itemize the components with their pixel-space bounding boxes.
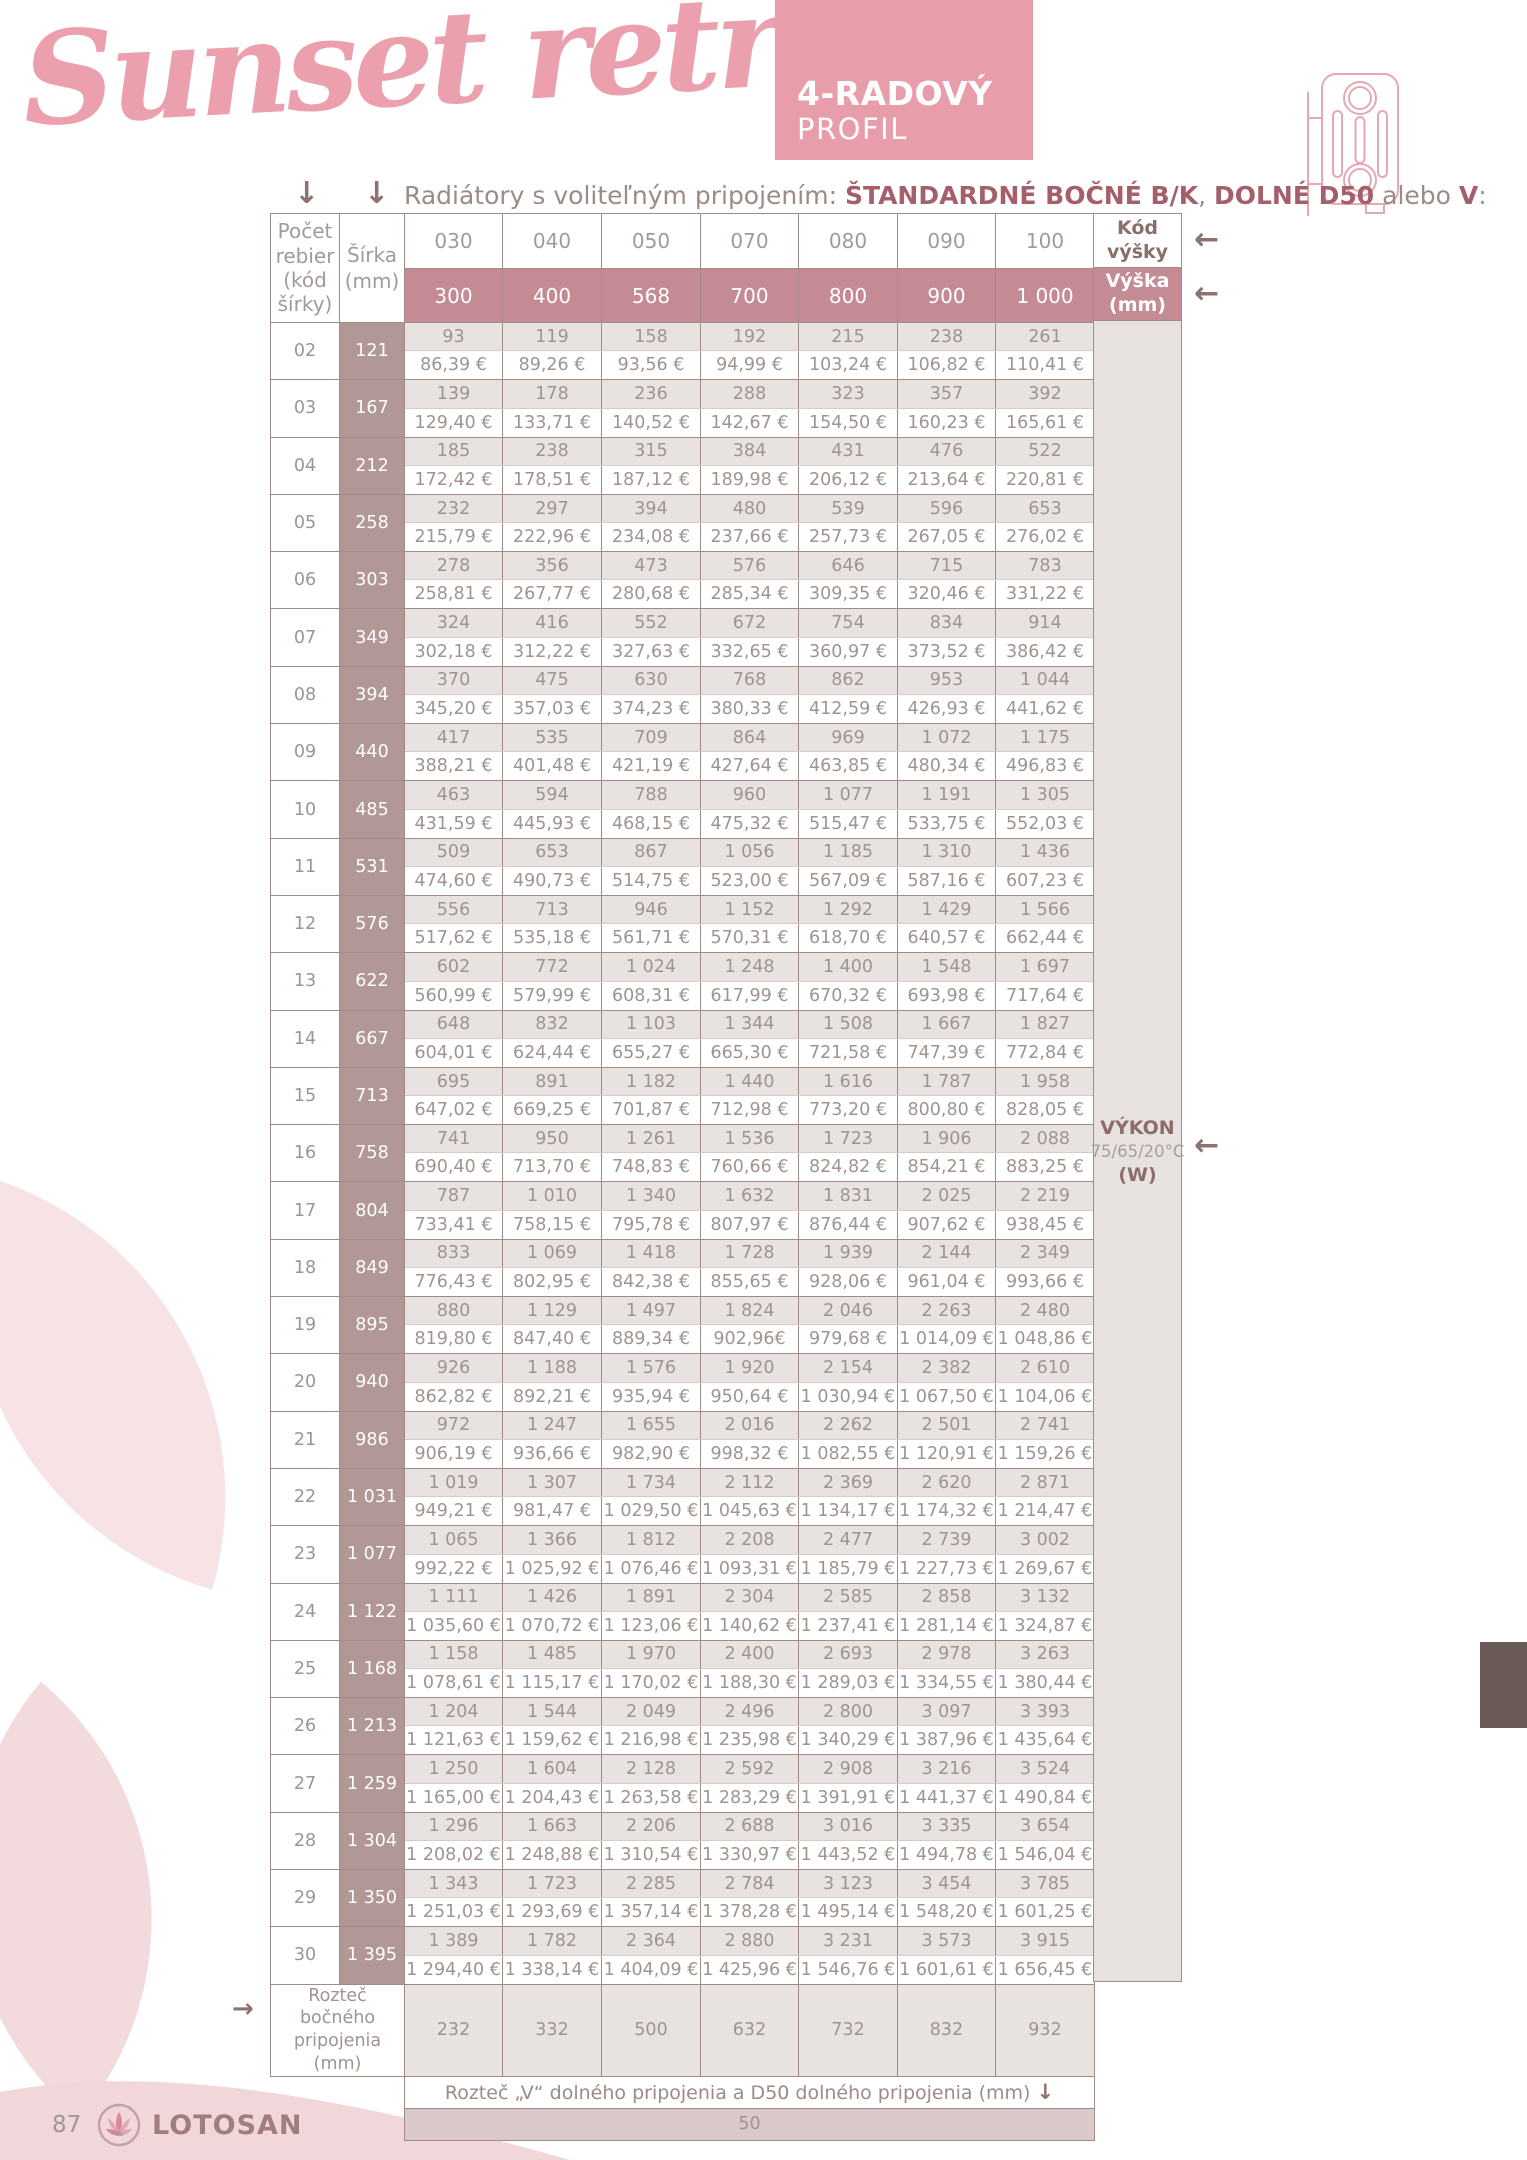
watt-cell: 3 263 (996, 1640, 1095, 1668)
rib-count-cell: 17 (271, 1182, 340, 1239)
watt-cell: 1 576 (602, 1354, 701, 1382)
price-cell: 1 310,54 € (602, 1841, 701, 1870)
watt-cell: 431 (799, 437, 898, 465)
price-cell: 560,99 € (405, 981, 503, 1010)
price-cell: 1 185,79 € (799, 1554, 898, 1583)
rib-count-cell: 20 (271, 1354, 340, 1411)
price-cell: 1 188,30 € (701, 1669, 799, 1698)
price-cell: 1 045,63 € (701, 1497, 799, 1526)
rib-count-cell: 07 (271, 609, 340, 666)
width-cell: 440 (340, 724, 405, 781)
price-cell: 993,66 € (996, 1268, 1095, 1297)
watt-cell: 1 958 (996, 1067, 1095, 1095)
watt-cell: 1 939 (799, 1239, 898, 1267)
price-cell: 1 076,46 € (602, 1554, 701, 1583)
price-cell: 567,09 € (799, 866, 898, 895)
price-cell: 824,82 € (799, 1153, 898, 1182)
table-row: 17 804 7871 0101 3401 6321 8312 0252 219 (271, 1182, 1095, 1210)
bottom-pitch-value-row: 50 (271, 2108, 1095, 2140)
bottom-pitch-row: Rozteč „V“ dolného pripojenia a D50 doln… (271, 2076, 1095, 2108)
price-cell: 345,20 € (405, 695, 503, 724)
price-cell: 1 159,62 € (503, 1726, 602, 1755)
price-cell: 760,66 € (701, 1153, 799, 1182)
table-row: 25 1 168 1 1581 4851 9702 4002 6932 9783… (271, 1640, 1095, 1668)
watt-cell: 648 (405, 1010, 503, 1038)
table-row: 23 1 077 1 0651 3661 8122 2082 4772 7393… (271, 1526, 1095, 1554)
table-row: 04 212 185238315384431476522 (271, 437, 1095, 465)
watt-cell: 2 496 (701, 1698, 799, 1726)
rib-count-cell: 15 (271, 1067, 340, 1124)
watt-cell: 1 204 (405, 1698, 503, 1726)
height-mm-cell: 1 000 (996, 269, 1095, 323)
rib-count-cell: 05 (271, 494, 340, 551)
left-arrow-icon: ← (1194, 276, 1219, 311)
price-cell: 1 140,62 € (701, 1611, 799, 1640)
watt-cell: 3 785 (996, 1870, 1095, 1898)
watt-cell: 1 340 (602, 1182, 701, 1210)
watt-cell: 522 (996, 437, 1095, 465)
page-edge-tab (1480, 1642, 1527, 1728)
watt-cell: 596 (898, 494, 996, 522)
watt-cell: 1 734 (602, 1468, 701, 1496)
price-cell: 388,21 € (405, 752, 503, 781)
watt-cell: 1 920 (701, 1354, 799, 1382)
watt-cell: 1 508 (799, 1010, 898, 1038)
watt-cell: 695 (405, 1067, 503, 1095)
price-cell: 1 035,60 € (405, 1611, 503, 1640)
watt-cell: 139 (405, 380, 503, 408)
watt-cell: 261 (996, 323, 1095, 351)
price-cell: 1 494,78 € (898, 1841, 996, 1870)
price-cell: 1 656,45 € (996, 1955, 1095, 1984)
watt-cell: 1 307 (503, 1468, 602, 1496)
price-cell: 280,68 € (602, 580, 701, 609)
width-cell: 258 (340, 494, 405, 551)
price-cell: 312,22 € (503, 637, 602, 666)
watt-cell: 880 (405, 1297, 503, 1325)
price-cell: 842,38 € (602, 1268, 701, 1297)
price-cell: 222,96 € (503, 523, 602, 552)
price-cell: 552,03 € (996, 809, 1095, 838)
watt-cell: 1 065 (405, 1526, 503, 1554)
price-table-body: 02 121 93119158192215238261 86,39 €89,26… (271, 323, 1095, 1985)
watt-cell: 1 667 (898, 1010, 996, 1038)
subtitle: Radiátory s voliteľným pripojením: ŠTAND… (404, 181, 1487, 210)
watt-cell: 1 497 (602, 1297, 701, 1325)
watt-cell: 1 103 (602, 1010, 701, 1038)
watt-cell: 416 (503, 609, 602, 637)
price-cell: 1 067,50 € (898, 1382, 996, 1411)
price-cell: 1 227,73 € (898, 1554, 996, 1583)
watt-cell: 754 (799, 609, 898, 637)
price-cell: 1 425,96 € (701, 1955, 799, 1984)
rib-count-cell: 26 (271, 1698, 340, 1755)
price-cell: 1 235,98 € (701, 1726, 799, 1755)
watt-cell: 475 (503, 666, 602, 694)
watt-cell: 768 (701, 666, 799, 694)
watt-cell: 2 049 (602, 1698, 701, 1726)
price-cell: 733,41 € (405, 1210, 503, 1239)
watt-cell: 1 426 (503, 1583, 602, 1611)
watt-cell: 1 831 (799, 1182, 898, 1210)
watt-cell: 238 (898, 323, 996, 351)
table-row: 30 1 395 1 3891 7822 3642 8803 2313 5733… (271, 1927, 1095, 1955)
watt-cell: 119 (503, 323, 602, 351)
side-pitch-value-cell: 232 (405, 1984, 503, 2076)
price-cell: 386,42 € (996, 637, 1095, 666)
watt-cell: 1 056 (701, 838, 799, 866)
table-row: 06 303 278356473576646715783 (271, 552, 1095, 580)
table-row: 29 1 350 1 3431 7232 2852 7843 1233 4543… (271, 1870, 1095, 1898)
power-label: VÝKON 75/65/20°C (W) (1093, 320, 1182, 1982)
watt-cell: 3 915 (996, 1927, 1095, 1955)
watt-cell: 2 088 (996, 1125, 1095, 1153)
watt-cell: 3 524 (996, 1755, 1095, 1783)
price-cell: 669,25 € (503, 1096, 602, 1125)
watt-cell: 787 (405, 1182, 503, 1210)
watt-cell: 1 188 (503, 1354, 602, 1382)
watt-cell: 960 (701, 781, 799, 809)
price-cell: 1 248,88 € (503, 1841, 602, 1870)
watt-cell: 3 573 (898, 1927, 996, 1955)
corner-header: Počet rebier (kód šírky) (271, 214, 340, 323)
decor-petal-icon (0, 1682, 278, 2119)
brand-name: LOTOSAN (152, 2110, 303, 2141)
watt-cell: 1 970 (602, 1640, 701, 1668)
height-mm-cell: 568 (602, 269, 701, 323)
height-code-label: Kód výšky (1093, 213, 1182, 268)
price-cell: 533,75 € (898, 809, 996, 838)
price-cell: 747,39 € (898, 1038, 996, 1067)
watt-cell: 2 620 (898, 1468, 996, 1496)
price-cell: 1 251,03 € (405, 1898, 503, 1927)
price-cell: 713,70 € (503, 1153, 602, 1182)
price-cell: 380,33 € (701, 695, 799, 724)
price-cell: 474,60 € (405, 866, 503, 895)
price-cell: 748,83 € (602, 1153, 701, 1182)
watt-cell: 463 (405, 781, 503, 809)
price-cell: 463,85 € (799, 752, 898, 781)
rib-count-cell: 03 (271, 380, 340, 437)
height-code-cell: 090 (898, 214, 996, 269)
watt-cell: 2 477 (799, 1526, 898, 1554)
height-code-cell: 070 (701, 214, 799, 269)
price-cell: 496,83 € (996, 752, 1095, 781)
rib-count-cell: 22 (271, 1468, 340, 1525)
watt-cell: 297 (503, 494, 602, 522)
price-cell: 776,43 € (405, 1268, 503, 1297)
watt-cell: 535 (503, 724, 602, 752)
watt-cell: 709 (602, 724, 701, 752)
watt-cell: 2 688 (701, 1812, 799, 1840)
width-cell: 1 031 (340, 1468, 405, 1525)
price-cell: 178,51 € (503, 465, 602, 494)
watt-cell: 1 891 (602, 1583, 701, 1611)
watt-cell: 2 858 (898, 1583, 996, 1611)
price-cell: 998,32 € (701, 1439, 799, 1468)
price-cell: 693,98 € (898, 981, 996, 1010)
watt-cell: 3 002 (996, 1526, 1095, 1554)
watt-cell: 2 154 (799, 1354, 898, 1382)
price-cell: 133,71 € (503, 408, 602, 437)
watt-cell: 2 263 (898, 1297, 996, 1325)
price-cell: 1 159,26 € (996, 1439, 1095, 1468)
watt-cell: 946 (602, 895, 701, 923)
rib-count-cell: 09 (271, 724, 340, 781)
price-cell: 1 546,04 € (996, 1841, 1095, 1870)
price-cell: 907,62 € (898, 1210, 996, 1239)
height-mm-cell: 400 (503, 269, 602, 323)
width-cell: 1 350 (340, 1870, 405, 1927)
power-label-unit: (W) (1118, 1164, 1156, 1186)
watt-cell: 556 (405, 895, 503, 923)
watt-cell: 3 335 (898, 1812, 996, 1840)
watt-cell: 1 247 (503, 1411, 602, 1439)
watt-cell: 2 585 (799, 1583, 898, 1611)
price-cell: 828,05 € (996, 1096, 1095, 1125)
width-cell: 713 (340, 1067, 405, 1124)
watt-cell: 93 (405, 323, 503, 351)
watt-cell: 392 (996, 380, 1095, 408)
watt-cell: 972 (405, 1411, 503, 1439)
watt-cell: 1 429 (898, 895, 996, 923)
height-code-cell: 050 (602, 214, 701, 269)
price-cell: 1 324,87 € (996, 1611, 1095, 1640)
watt-cell: 953 (898, 666, 996, 694)
watt-cell: 2 880 (701, 1927, 799, 1955)
price-cell: 1 334,55 € (898, 1669, 996, 1698)
price-cell: 1 404,09 € (602, 1955, 701, 1984)
price-cell: 961,04 € (898, 1268, 996, 1297)
price-cell: 1 048,86 € (996, 1325, 1095, 1354)
watt-cell: 236 (602, 380, 701, 408)
watt-cell: 772 (503, 953, 602, 981)
width-cell: 622 (340, 953, 405, 1010)
watt-cell: 1 723 (503, 1870, 602, 1898)
price-cell: 94,99 € (701, 351, 799, 380)
price-cell: 1 378,28 € (701, 1898, 799, 1927)
power-label-conditions: 75/65/20°C (1091, 1142, 1185, 1161)
price-cell: 608,31 € (602, 981, 701, 1010)
price-cell: 1 170,02 € (602, 1669, 701, 1698)
width-cell: 121 (340, 323, 405, 380)
rib-count-cell: 28 (271, 1812, 340, 1869)
watt-cell: 1 343 (405, 1870, 503, 1898)
watt-cell: 1 292 (799, 895, 898, 923)
watt-cell: 1 697 (996, 953, 1095, 981)
price-cell: 721,58 € (799, 1038, 898, 1067)
watt-cell: 2 112 (701, 1468, 799, 1496)
down-arrow-icon: ↓ (1037, 2080, 1055, 2104)
watt-cell: 1 261 (602, 1125, 701, 1153)
price-cell: 160,23 € (898, 408, 996, 437)
left-arrow-icon: ← (1194, 1128, 1219, 1163)
price-cell: 712,98 € (701, 1096, 799, 1125)
price-cell: 1 495,14 € (799, 1898, 898, 1927)
price-cell: 819,80 € (405, 1325, 503, 1354)
watt-cell: 2 144 (898, 1239, 996, 1267)
price-cell: 1 216,98 € (602, 1726, 701, 1755)
watt-cell: 3 231 (799, 1927, 898, 1955)
price-cell: 142,67 € (701, 408, 799, 437)
price-cell: 587,16 € (898, 866, 996, 895)
watt-cell: 394 (602, 494, 701, 522)
watt-cell: 2 592 (701, 1755, 799, 1783)
watt-cell: 192 (701, 323, 799, 351)
rib-count-cell: 21 (271, 1411, 340, 1468)
side-pitch-label: Rozteč bočného pripojenia (mm) (271, 1984, 405, 2076)
watt-cell: 653 (503, 838, 602, 866)
price-cell: 690,40 € (405, 1153, 503, 1182)
table-row: 18 849 8331 0691 4181 7281 9392 1442 349 (271, 1239, 1095, 1267)
profile-badge: 4-RADOVÝ PROFIL (775, 0, 1033, 160)
price-cell: 187,12 € (602, 465, 701, 494)
price-cell: 607,23 € (996, 866, 1095, 895)
rib-count-cell: 29 (271, 1870, 340, 1927)
watt-cell: 2 208 (701, 1526, 799, 1554)
price-cell: 1 380,44 € (996, 1669, 1095, 1698)
watt-cell: 1 787 (898, 1067, 996, 1095)
watt-cell: 969 (799, 724, 898, 752)
price-cell: 1 601,25 € (996, 1898, 1095, 1927)
watt-cell: 232 (405, 494, 503, 522)
price-cell: 1 281,14 € (898, 1611, 996, 1640)
price-cell: 883,25 € (996, 1153, 1095, 1182)
side-pitch-value-cell: 932 (996, 1984, 1095, 2076)
watt-cell: 315 (602, 437, 701, 465)
watt-cell: 713 (503, 895, 602, 923)
watt-cell: 480 (701, 494, 799, 522)
side-pitch-value-cell: 500 (602, 1984, 701, 2076)
watt-cell: 509 (405, 838, 503, 866)
price-cell: 331,22 € (996, 580, 1095, 609)
price-cell: 1 174,32 € (898, 1497, 996, 1526)
watt-cell: 891 (503, 1067, 602, 1095)
watt-cell: 862 (799, 666, 898, 694)
page-number: 87 (52, 2112, 81, 2138)
rib-count-cell: 19 (271, 1297, 340, 1354)
price-cell: 427,64 € (701, 752, 799, 781)
price-cell: 475,32 € (701, 809, 799, 838)
watt-cell: 2 369 (799, 1468, 898, 1496)
down-arrow-icon: ↓ (294, 176, 319, 211)
side-pitch-row: Rozteč bočného pripojenia (mm) 232332500… (271, 1984, 1095, 2076)
price-cell: 285,34 € (701, 580, 799, 609)
watt-cell: 1 344 (701, 1010, 799, 1038)
width-cell: 758 (340, 1125, 405, 1182)
price-cell: 215,79 € (405, 523, 503, 552)
watt-cell: 2 784 (701, 1870, 799, 1898)
price-cell: 889,34 € (602, 1325, 701, 1354)
watt-cell: 3 454 (898, 1870, 996, 1898)
price-cell: 426,93 € (898, 695, 996, 724)
price-cell: 1 601,61 € (898, 1955, 996, 1984)
price-cell: 1 269,67 € (996, 1554, 1095, 1583)
watt-cell: 1 616 (799, 1067, 898, 1095)
watt-cell: 1 782 (503, 1927, 602, 1955)
price-cell: 220,81 € (996, 465, 1095, 494)
table-row: 07 349 324416552672754834914 (271, 609, 1095, 637)
price-cell: 981,47 € (503, 1497, 602, 1526)
watt-cell: 1 436 (996, 838, 1095, 866)
watt-cell: 1 191 (898, 781, 996, 809)
watt-cell: 539 (799, 494, 898, 522)
watt-cell: 1 182 (602, 1067, 701, 1095)
width-cell: 1 259 (340, 1755, 405, 1812)
watt-cell: 238 (503, 437, 602, 465)
table-row: 22 1 031 1 0191 3071 7342 1122 3692 6202… (271, 1468, 1095, 1496)
price-cell: 579,99 € (503, 981, 602, 1010)
height-code-cell: 040 (503, 214, 602, 269)
price-cell: 979,68 € (799, 1325, 898, 1354)
watt-cell: 833 (405, 1239, 503, 1267)
watt-cell: 1 655 (602, 1411, 701, 1439)
watt-cell: 950 (503, 1125, 602, 1153)
width-cell: 167 (340, 380, 405, 437)
watt-cell: 867 (602, 838, 701, 866)
watt-cell: 1 185 (799, 838, 898, 866)
price-cell: 154,50 € (799, 408, 898, 437)
watt-cell: 1 250 (405, 1755, 503, 1783)
left-arrow-icon: ← (1194, 222, 1219, 257)
price-cell: 928,06 € (799, 1268, 898, 1297)
price-cell: 717,64 € (996, 981, 1095, 1010)
price-cell: 1 208,02 € (405, 1841, 503, 1870)
price-cell: 847,40 € (503, 1325, 602, 1354)
watt-cell: 1 111 (405, 1583, 503, 1611)
watt-cell: 473 (602, 552, 701, 580)
price-cell: 276,02 € (996, 523, 1095, 552)
watt-cell: 1 824 (701, 1297, 799, 1325)
watt-cell: 2 480 (996, 1297, 1095, 1325)
price-cell: 1 283,29 € (701, 1783, 799, 1812)
rib-count-cell: 30 (271, 1927, 340, 1984)
watt-cell: 832 (503, 1010, 602, 1038)
price-cell: 514,75 € (602, 866, 701, 895)
watt-cell: 278 (405, 552, 503, 580)
watt-cell: 1 069 (503, 1239, 602, 1267)
width-cell: 576 (340, 895, 405, 952)
width-cell: 531 (340, 838, 405, 895)
price-cell: 561,71 € (602, 924, 701, 953)
price-cell: 445,93 € (503, 809, 602, 838)
watt-cell: 2 128 (602, 1755, 701, 1783)
price-cell: 655,27 € (602, 1038, 701, 1067)
price-cell: 1 330,97 € (701, 1841, 799, 1870)
price-cell: 936,66 € (503, 1439, 602, 1468)
width-cell: 895 (340, 1297, 405, 1354)
watt-cell: 2 400 (701, 1640, 799, 1668)
height-mm-label: Výška (mm) (1093, 267, 1182, 321)
watt-cell: 1 728 (701, 1239, 799, 1267)
watt-cell: 1 389 (405, 1927, 503, 1955)
watt-cell: 2 693 (799, 1640, 898, 1668)
watt-cell: 2 349 (996, 1239, 1095, 1267)
rib-count-cell: 08 (271, 666, 340, 723)
series-title: Sunset retro (19, 0, 862, 156)
rib-count-cell: 06 (271, 552, 340, 609)
price-cell: 640,57 € (898, 924, 996, 953)
price-cell: 1 546,76 € (799, 1955, 898, 1984)
watt-cell: 1 044 (996, 666, 1095, 694)
watt-cell: 417 (405, 724, 503, 752)
watt-cell: 834 (898, 609, 996, 637)
width-cell: 1 168 (340, 1640, 405, 1697)
price-cell: 302,18 € (405, 637, 503, 666)
height-code-cell: 030 (405, 214, 503, 269)
rib-count-cell: 16 (271, 1125, 340, 1182)
watt-cell: 2 978 (898, 1640, 996, 1668)
